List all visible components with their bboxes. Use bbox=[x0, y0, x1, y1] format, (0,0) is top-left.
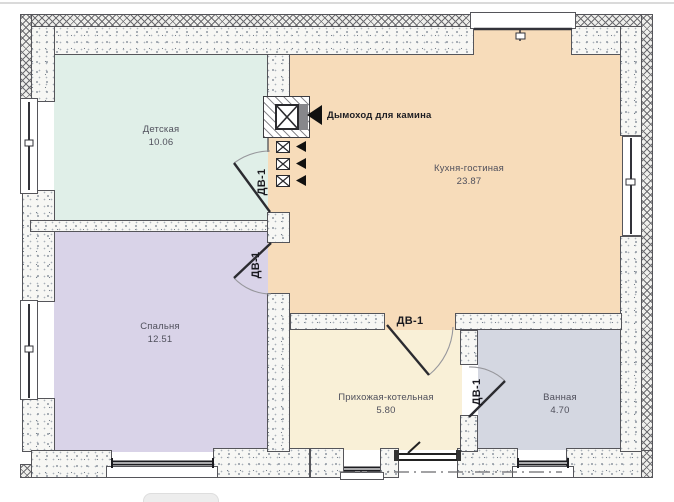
door-tag-hall: ДВ-1 bbox=[380, 314, 440, 328]
wall-int-bath-block1 bbox=[460, 330, 478, 365]
label-bedroom: Спальня 12.51 bbox=[100, 320, 220, 346]
door-tag-bathroom: ДВ-1 bbox=[470, 362, 484, 422]
room-area: 4.70 bbox=[500, 404, 620, 417]
vent-box-3 bbox=[276, 175, 290, 187]
label-detskaya: Детская 10.06 bbox=[101, 123, 221, 149]
wall-int-vert-block2 bbox=[267, 293, 290, 452]
page-top-divider bbox=[0, 2, 674, 4]
wall-left-pier1 bbox=[31, 26, 55, 102]
room-name: Кухня-гостиная bbox=[399, 162, 539, 175]
room-kitchen-living-window-bay bbox=[474, 29, 571, 59]
wall-top-b bbox=[571, 26, 622, 55]
wall-right-pier1 bbox=[620, 26, 642, 136]
room-name: Спальня bbox=[100, 320, 220, 333]
wall-int-detskaya-bedroom bbox=[30, 220, 268, 232]
room-area: 10.06 bbox=[101, 136, 221, 149]
wall-bottom-pierB bbox=[213, 448, 310, 478]
wall-bottom-pierC bbox=[457, 448, 518, 478]
window-bottom-hall-sill bbox=[340, 472, 384, 480]
window-bottom-bedroom-sill bbox=[106, 466, 218, 478]
room-area: 23.87 bbox=[399, 175, 539, 188]
wall-left-pier2 bbox=[22, 190, 55, 302]
wall-hatch-right bbox=[641, 14, 653, 478]
chimney-note: Дымоход для камина bbox=[327, 110, 432, 121]
wall-int-vert-top bbox=[267, 54, 290, 98]
window-left-bedroom bbox=[20, 300, 38, 400]
room-area: 12.51 bbox=[100, 333, 220, 346]
chimney-flue-box bbox=[275, 104, 299, 130]
wall-int-kitchen-hall bbox=[290, 313, 385, 330]
window-right-kitchen bbox=[622, 136, 642, 236]
room-bathroom bbox=[478, 330, 620, 450]
wall-int-vert-block1 bbox=[267, 212, 290, 243]
wall-bottom-pierB2 bbox=[310, 448, 344, 478]
window-left-detskaya bbox=[20, 98, 38, 194]
room-name: Детская bbox=[101, 123, 221, 136]
window-bottom-bathroom-sill bbox=[512, 466, 574, 478]
label-hall-boiler: Прихожая-котельная 5.80 bbox=[316, 391, 456, 417]
vent-box-2 bbox=[276, 158, 290, 170]
room-name: Ванная bbox=[500, 391, 620, 404]
label-kitchen-living: Кухня-гостиная 23.87 bbox=[399, 162, 539, 188]
floor-plan: Детская 10.06 Кухня-гостиная 23.87 Спаль… bbox=[0, 0, 674, 502]
wall-right-pier2 bbox=[620, 236, 642, 452]
room-kitchen-living bbox=[268, 54, 623, 330]
room-hall-boiler bbox=[290, 330, 462, 450]
wall-bottom-pierD bbox=[566, 448, 642, 478]
room-name: Прихожая-котельная bbox=[316, 391, 456, 404]
wall-left-pier3 bbox=[22, 398, 55, 452]
chimney-flue-shade bbox=[299, 104, 308, 130]
wall-top-a bbox=[31, 26, 474, 55]
door-tag-bedroom: ДВ-1 bbox=[249, 235, 263, 295]
label-bathroom: Ванная 4.70 bbox=[500, 391, 620, 417]
footer-button[interactable] bbox=[143, 493, 219, 502]
wall-bottom-pierA bbox=[31, 450, 112, 478]
room-area: 5.80 bbox=[316, 404, 456, 417]
window-top-kitchen bbox=[470, 12, 576, 29]
wall-int-bathroom-top bbox=[455, 313, 622, 330]
vent-box-1 bbox=[276, 141, 290, 153]
door-tag-detskaya: ДВ-1 bbox=[255, 152, 269, 212]
